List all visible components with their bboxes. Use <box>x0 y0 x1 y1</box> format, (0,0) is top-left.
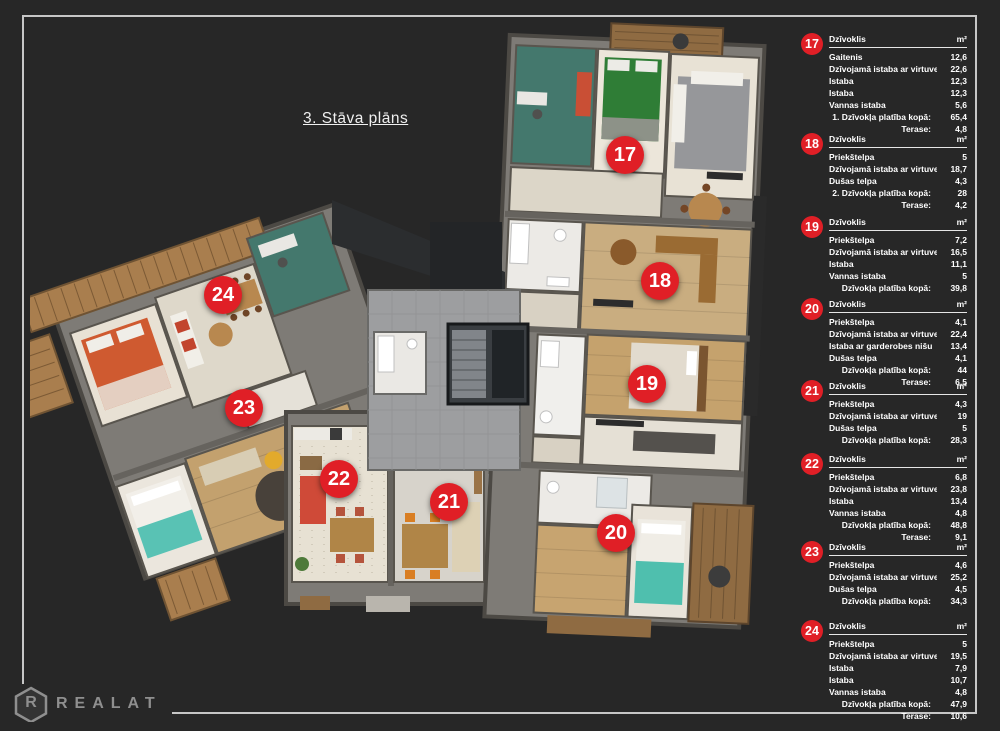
legend-header-row: Dzīvoklis m² <box>829 133 967 148</box>
legend-header-row: Dzīvoklis m² <box>829 298 967 313</box>
legend-room-row: Vannas istaba 5,6 <box>829 99 967 111</box>
room-label: Vannas istaba <box>829 686 937 698</box>
room-label: Vannas istaba <box>829 507 937 519</box>
total-label: Dzīvokļa platība kopā: <box>829 698 937 710</box>
legend-apartment-table: Dzīvoklis m² Priekštelpa 4,1 Dzīvoja <box>829 298 967 388</box>
room-label: Istaba <box>829 495 937 507</box>
legend-header-unit: m² <box>937 33 967 45</box>
legend-room-row: Istaba ar garderobes nišu 13,4 <box>829 340 967 352</box>
legend-total-row: Dzīvokļa platība kopā: 48,8 <box>829 519 967 531</box>
legend-room-rows: Priekštelpa 6,8 Dzīvojamā istaba ar virt… <box>829 471 967 519</box>
legend-room-row: Vannas istaba 4,8 <box>829 507 967 519</box>
legend-header-unit: m² <box>937 620 967 632</box>
legend-apartment-number-badge: 17 <box>801 33 823 55</box>
room-area-value: 18,7 <box>937 163 967 175</box>
room-area-value: 4,6 <box>937 559 967 571</box>
legend-room-rows: Priekštelpa 4,1 Dzīvojamā istaba ar virt… <box>829 316 967 364</box>
total-value: 48,8 <box>937 519 967 531</box>
legend-total-rows: 2. Dzīvokļa platība kopā: 28 Terase: 4,2 <box>829 187 967 211</box>
logo-letter: R <box>14 694 48 712</box>
legend-room-row: Dušas telpa 4,1 <box>829 352 967 364</box>
legend-header-label: Dzīvoklis <box>829 298 937 310</box>
legend-apartment-block: 18 Dzīvoklis m² Priekštelpa 5 <box>791 133 977 211</box>
legend-header-label: Dzīvoklis <box>829 620 937 632</box>
legend-room-row: Dzīvojamā istaba ar virtuves nišu 22,4 <box>829 328 967 340</box>
room-area-value: 4,8 <box>937 686 967 698</box>
plan-marker-17[interactable]: 17 <box>606 136 644 174</box>
legend-room-row: Dzīvojamā istaba ar virtuves zonu 18,7 <box>829 163 967 175</box>
total-value: 47,9 <box>937 698 967 710</box>
legend-total-row: 1. Dzīvokļa platība kopā: 65,4 <box>829 111 967 123</box>
legend-apartment-table: Dzīvoklis m² Priekštelpa 6,8 Dzīvoja <box>829 453 967 543</box>
legend-header-row: Dzīvoklis m² <box>829 33 967 48</box>
room-label: Priekštelpa <box>829 234 937 246</box>
legend-header-label: Dzīvoklis <box>829 380 937 392</box>
apartment-19-rooms <box>532 332 745 471</box>
legend-header-unit: m² <box>937 380 967 392</box>
legend-header-row: Dzīvoklis m² <box>829 380 967 395</box>
legend-total-row: Dzīvokļa platība kopā: 39,8 <box>829 282 967 294</box>
total-label: Terase: <box>829 710 937 722</box>
legend-total-row: 2. Dzīvokļa platība kopā: 28 <box>829 187 967 199</box>
total-value: 28 <box>937 187 967 199</box>
page: 3. Stāva plāns <box>0 0 1000 731</box>
room-area-value: 5 <box>937 638 967 650</box>
room-label: Dzīvojamā istaba ar virtuves zonu <box>829 571 937 583</box>
room-label: Gaitenis <box>829 51 937 63</box>
legend-header-label: Dzīvoklis <box>829 216 937 228</box>
legend-apartment-table: Dzīvoklis m² Priekštelpa 4,3 Dzīvoja <box>829 380 967 446</box>
room-area-value: 12,6 <box>937 51 967 63</box>
realat-logo: R REALAT <box>12 684 172 724</box>
plan-marker-19[interactable]: 19 <box>628 365 666 403</box>
room-label: Dušas telpa <box>829 583 937 595</box>
legend-room-row: Istaba 12,3 <box>829 75 967 87</box>
page-title: 3. Stāva plāns <box>303 110 408 128</box>
legend-room-row: Priekštelpa 5 <box>829 151 967 163</box>
legend-room-row: Priekštelpa 4,6 <box>829 559 967 571</box>
legend-room-rows: Priekštelpa 4,3 Dzīvojamā istaba ar virt… <box>829 398 967 434</box>
legend-apartment-number-badge: 22 <box>801 453 823 475</box>
floor-plan <box>30 20 790 670</box>
legend-total-rows: Dzīvokļa platība kopā: 47,9 Terase: 10,6 <box>829 698 967 722</box>
legend-total-row: Terase: 10,6 <box>829 710 967 722</box>
legend-header-row: Dzīvoklis m² <box>829 216 967 231</box>
legend-apartment-number-badge: 20 <box>801 298 823 320</box>
legend-apartment-number-badge: 23 <box>801 541 823 563</box>
room-area-value: 5 <box>937 270 967 282</box>
room-area-value: 5 <box>937 422 967 434</box>
room-area-value: 4,1 <box>937 316 967 328</box>
legend-apartment-table: Dzīvoklis m² Priekštelpa 7,2 Dzīvoja <box>829 216 967 294</box>
room-label: Priekštelpa <box>829 638 937 650</box>
logo-text: REALAT <box>56 695 162 713</box>
legend-apartment-table: Dzīvoklis m² Priekštelpa 5 Dzīvojamā <box>829 620 967 722</box>
plan-marker-22[interactable]: 22 <box>320 460 358 498</box>
room-label: Istaba <box>829 87 937 99</box>
legend-room-row: Priekštelpa 7,2 <box>829 234 967 246</box>
legend-room-rows: Priekštelpa 5 Dzīvojamā istaba ar virtuv… <box>829 638 967 698</box>
plan-marker-18[interactable]: 18 <box>641 262 679 300</box>
legend-apartment-block: 23 Dzīvoklis m² Priekštelpa 4,6 <box>791 541 977 607</box>
legend-header-label: Dzīvoklis <box>829 453 937 465</box>
room-area-value: 19 <box>937 410 967 422</box>
legend-apartment-block: 21 Dzīvoklis m² Priekštelpa 4,3 <box>791 380 977 446</box>
room-area-value: 4,1 <box>937 352 967 364</box>
room-label: Istaba <box>829 674 937 686</box>
legend-room-rows: Priekštelpa 5 Dzīvojamā istaba ar virtuv… <box>829 151 967 187</box>
legend-header-label: Dzīvoklis <box>829 133 937 145</box>
room-label: Istaba <box>829 258 937 270</box>
room-label: Vannas istaba <box>829 270 937 282</box>
legend-room-row: Gaitenis 12,6 <box>829 51 967 63</box>
legend-apartment-block: 17 Dzīvoklis m² Gaitenis 12,6 <box>791 33 977 135</box>
total-value: 4,2 <box>937 199 967 211</box>
room-area-value: 16,5 <box>937 246 967 258</box>
room-area-value: 13,4 <box>937 495 967 507</box>
legend-room-rows: Priekštelpa 4,6 Dzīvojamā istaba ar virt… <box>829 559 967 595</box>
room-area-value: 11,1 <box>937 258 967 270</box>
legend-header-unit: m² <box>937 298 967 310</box>
legend-total-rows: Dzīvokļa platība kopā: 34,3 <box>829 595 967 607</box>
room-label: Priekštelpa <box>829 316 937 328</box>
room-area-value: 4,3 <box>937 175 967 187</box>
room-label: Priekštelpa <box>829 559 937 571</box>
legend-room-row: Vannas istaba 5 <box>829 270 967 282</box>
room-area-value: 22,4 <box>937 328 967 340</box>
room-label: Dzīvojamā istaba ar virtuves zonu <box>829 246 937 258</box>
room-label: Dzīvojamā istaba ar virtuves zonu <box>829 163 937 175</box>
room-area-value: 19,5 <box>937 650 967 662</box>
total-label: 1. Dzīvokļa platība kopā: <box>829 111 937 123</box>
room-area-value: 22,6 <box>937 63 967 75</box>
legend-header-label: Dzīvoklis <box>829 33 937 45</box>
legend-apartment-number-badge: 24 <box>801 620 823 642</box>
legend-room-row: Priekštelpa 6,8 <box>829 471 967 483</box>
legend-room-row: Dzīvojamā istaba ar virtuves zonu 23,8 <box>829 483 967 495</box>
logo-hexagon-icon: R <box>14 686 48 722</box>
legend-room-row: Dzīvojamā istaba ar virtuves nišu 22,6 <box>829 63 967 75</box>
room-label: Istaba <box>829 662 937 674</box>
legend-room-rows: Priekštelpa 7,2 Dzīvojamā istaba ar virt… <box>829 234 967 282</box>
room-area-value: 4,3 <box>937 398 967 410</box>
legend-apartment-block: 22 Dzīvoklis m² Priekštelpa 6,8 <box>791 453 977 543</box>
plan-marker-20[interactable]: 20 <box>597 514 635 552</box>
legend-room-row: Dušas telpa 4,3 <box>829 175 967 187</box>
legend-header-row: Dzīvoklis m² <box>829 541 967 556</box>
legend-total-row: Dzīvokļa platība kopā: 28,3 <box>829 434 967 446</box>
total-label: Dzīvokļa platība kopā: <box>829 519 937 531</box>
room-area-value: 7,9 <box>937 662 967 674</box>
room-area-value: 25,2 <box>937 571 967 583</box>
room-area-value: 5 <box>937 151 967 163</box>
legend-room-row: Dzīvojamā istaba ar virtuves zonu 19,5 <box>829 650 967 662</box>
legend-room-row: Dušas telpa 4,5 <box>829 583 967 595</box>
legend-total-rows: Dzīvokļa platība kopā: 39,8 <box>829 282 967 294</box>
room-label: Priekštelpa <box>829 471 937 483</box>
legend-header-unit: m² <box>937 453 967 465</box>
legend-total-rows: 1. Dzīvokļa platība kopā: 65,4 Terase: 4… <box>829 111 967 135</box>
legend-total-row: Dzīvokļa platība kopā: 47,9 <box>829 698 967 710</box>
total-label: Dzīvokļa platība kopā: <box>829 364 937 376</box>
legend-room-rows: Gaitenis 12,6 Dzīvojamā istaba ar virtuv… <box>829 51 967 111</box>
legend-apartment-number-badge: 19 <box>801 216 823 238</box>
room-area-value: 4,8 <box>937 507 967 519</box>
legend-room-row: Dzīvojamā istaba ar virtuves zonu 25,2 <box>829 571 967 583</box>
room-label: Dzīvojamā istaba ar virtuves zonu <box>829 650 937 662</box>
total-value: 28,3 <box>937 434 967 446</box>
legend-header-row: Dzīvoklis m² <box>829 453 967 468</box>
room-label: Dzīvojamā istaba ar virtuves nišu <box>829 328 937 340</box>
total-value: 34,3 <box>937 595 967 607</box>
legend-header-unit: m² <box>937 216 967 228</box>
total-label: Dzīvokļa platība kopā: <box>829 434 937 446</box>
room-label: Priekštelpa <box>829 151 937 163</box>
legend-room-row: Priekštelpa 4,1 <box>829 316 967 328</box>
legend-total-row: Dzīvokļa platība kopā: 34,3 <box>829 595 967 607</box>
legend-apartment-number-badge: 18 <box>801 133 823 155</box>
room-area-value: 13,4 <box>937 340 967 352</box>
legend-room-row: Istaba 7,9 <box>829 662 967 674</box>
room-label: Dzīvojamā istaba ar virtuves zonu <box>829 483 937 495</box>
room-area-value: 7,2 <box>937 234 967 246</box>
room-label: Dušas telpa <box>829 422 937 434</box>
total-value: 44 <box>937 364 967 376</box>
total-label: Dzīvokļa platība kopā: <box>829 282 937 294</box>
room-label: Vannas istaba <box>829 99 937 111</box>
room-area-value: 23,8 <box>937 483 967 495</box>
legend-apartment-number-badge: 21 <box>801 380 823 402</box>
legend-room-row: Dzīvojamā istaba ar virtuves zonu 16,5 <box>829 246 967 258</box>
plan-marker-21[interactable]: 21 <box>430 483 468 521</box>
total-label: Dzīvokļa platība kopā: <box>829 595 937 607</box>
legend-apartment-block: 24 Dzīvoklis m² Priekštelpa 5 <box>791 620 977 722</box>
legend-total-row: Dzīvokļa platība kopā: 44 <box>829 364 967 376</box>
legend-apartment-table: Dzīvoklis m² Priekštelpa 5 Dzīvojamā <box>829 133 967 211</box>
room-label: Dušas telpa <box>829 175 937 187</box>
legend-header-row: Dzīvoklis m² <box>829 620 967 635</box>
room-area-value: 10,7 <box>937 674 967 686</box>
legend-room-row: Vannas istaba 4,8 <box>829 686 967 698</box>
room-label: Istaba <box>829 75 937 87</box>
legend-apartment-block: 20 Dzīvoklis m² Priekštelpa 4,1 <box>791 298 977 388</box>
legend-room-row: Istaba 10,7 <box>829 674 967 686</box>
legend-total-row: Terase: 4,2 <box>829 199 967 211</box>
room-area-value: 12,3 <box>937 87 967 99</box>
legend-room-row: Dušas telpa 5 <box>829 422 967 434</box>
total-label: Terase: <box>829 199 937 211</box>
legend-room-row: Istaba 13,4 <box>829 495 967 507</box>
plan-marker-23[interactable]: 23 <box>225 389 263 427</box>
room-label: Istaba ar garderobes nišu <box>829 340 937 352</box>
legend-room-row: Priekštelpa 5 <box>829 638 967 650</box>
legend-header-unit: m² <box>937 133 967 145</box>
legend-room-row: Priekštelpa 4,3 <box>829 398 967 410</box>
room-label: Dzīvojamā istaba ar virtuves zonu <box>829 410 937 422</box>
room-area-value: 6,8 <box>937 471 967 483</box>
total-value: 39,8 <box>937 282 967 294</box>
room-label: Priekštelpa <box>829 398 937 410</box>
legend-header-unit: m² <box>937 541 967 553</box>
total-value: 10,6 <box>937 710 967 722</box>
legend-header-label: Dzīvoklis <box>829 541 937 553</box>
legend-room-row: Dzīvojamā istaba ar virtuves zonu 19 <box>829 410 967 422</box>
legend-total-rows: Dzīvokļa platība kopā: 48,8 Terase: 9,1 <box>829 519 967 543</box>
room-area-value: 4,5 <box>937 583 967 595</box>
room-area-value: 12,3 <box>937 75 967 87</box>
plan-marker-24[interactable]: 24 <box>204 276 242 314</box>
room-area-value: 5,6 <box>937 99 967 111</box>
room-label: Dzīvojamā istaba ar virtuves nišu <box>829 63 937 75</box>
legend-total-rows: Dzīvokļa platība kopā: 28,3 <box>829 434 967 446</box>
legend-apartment-block: 19 Dzīvoklis m² Priekštelpa 7,2 <box>791 216 977 294</box>
legend-apartment-table: Dzīvoklis m² Priekštelpa 4,6 Dzīvoja <box>829 541 967 607</box>
total-value: 65,4 <box>937 111 967 123</box>
apartment-legend: 17 Dzīvoklis m² Gaitenis 12,6 <box>791 0 977 731</box>
apartment-18-rooms <box>504 219 751 337</box>
total-label: 2. Dzīvokļa platība kopā: <box>829 187 937 199</box>
legend-room-row: Istaba 12,3 <box>829 87 967 99</box>
room-label: Dušas telpa <box>829 352 937 364</box>
terrace-deck-20 <box>688 503 753 624</box>
legend-room-row: Istaba 11,1 <box>829 258 967 270</box>
legend-apartment-table: Dzīvoklis m² Gaitenis 12,6 Dzīvojamā <box>829 33 967 135</box>
